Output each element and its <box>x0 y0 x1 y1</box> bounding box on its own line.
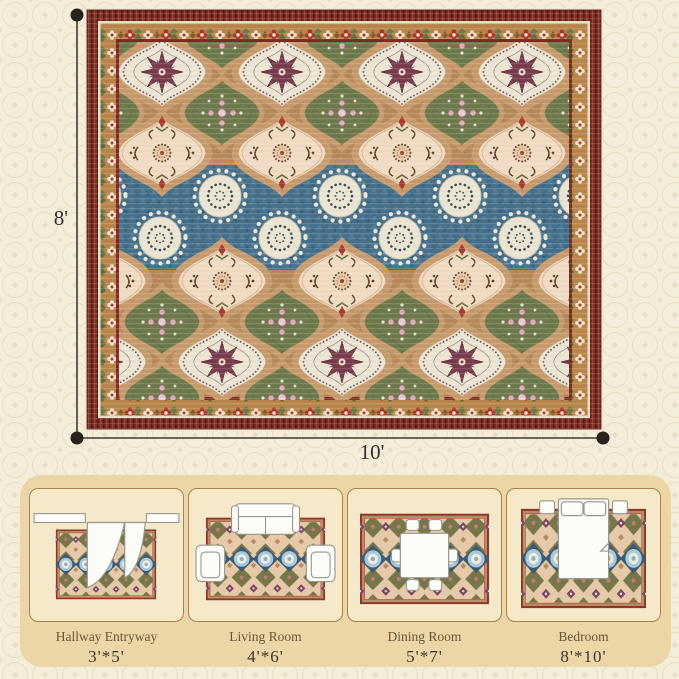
pillow-icon <box>561 502 583 516</box>
room-name-label: Bedroom <box>506 629 661 645</box>
room-size-panel: Hallway Entryway 3'*5' <box>20 475 671 667</box>
room-name-label: Living Room <box>188 629 343 645</box>
room-size-label: 3'*5' <box>29 647 184 667</box>
rug-image <box>85 8 603 431</box>
room-name-label: Dining Room <box>347 629 502 645</box>
room-card-hallway: Hallway Entryway 3'*5' <box>29 488 184 667</box>
thumbnail-dining <box>347 488 502 622</box>
wall <box>34 514 179 523</box>
thumbnail-living <box>188 488 343 622</box>
room-size-label: 8'*10' <box>506 647 661 667</box>
room-card-dining: Dining Room 5'*7' <box>347 488 502 667</box>
room-card-bedroom: Bedroom 8'*10' <box>506 488 661 667</box>
sofa-icon <box>232 504 300 535</box>
room-cards: Hallway Entryway 3'*5' <box>20 475 671 667</box>
room-card-living: Living Room 4'*6' <box>188 488 343 667</box>
dimension-height-label: 8' <box>34 208 68 229</box>
bed-icon <box>558 499 608 579</box>
product-image: { "rug": { "height_label": "8'", "width_… <box>0 0 679 679</box>
thumbnail-bedroom <box>506 488 661 622</box>
thumbnail-hallway <box>29 488 184 622</box>
pillow-icon <box>584 502 606 516</box>
room-name-label: Hallway Entryway <box>29 629 184 645</box>
room-size-label: 4'*6' <box>188 647 343 667</box>
room-size-label: 5'*7' <box>347 647 502 667</box>
dining-table-icon <box>400 533 448 577</box>
dimension-width-label: 10' <box>340 442 404 463</box>
